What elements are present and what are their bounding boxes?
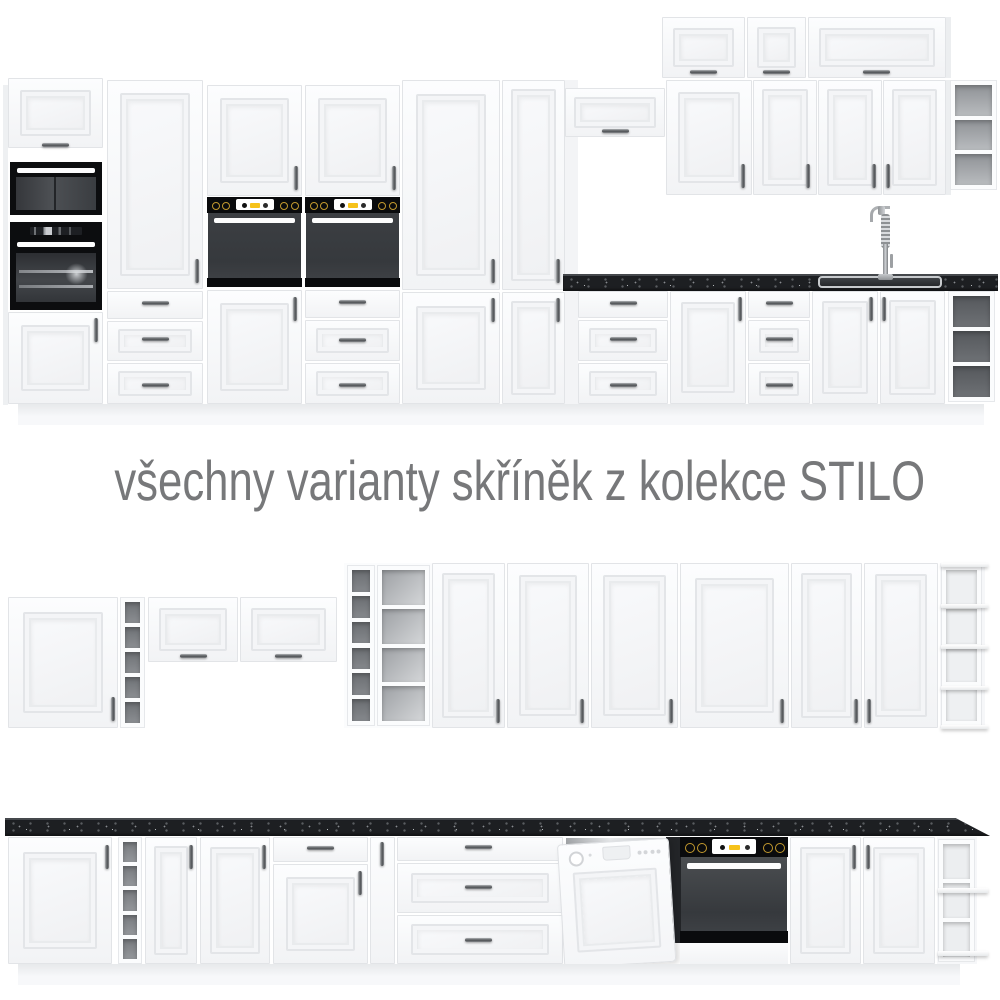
shelf-cell [946,570,977,605]
open-shelf-column [120,597,145,728]
display-dot [263,203,268,208]
door-panel [29,333,82,383]
handle [738,297,742,321]
shelf-cell [953,331,990,362]
door-panel [519,97,548,273]
handle [741,164,745,188]
handle [886,164,890,188]
door-panel [809,581,844,710]
door-panel [28,98,83,128]
door-panel [31,860,89,941]
tall-cabinet-door [502,80,565,290]
tall-cabinet-top-door [8,78,103,148]
tall-cabinet-door [864,563,938,728]
display-dot [242,203,247,208]
shelf-cell [382,648,425,683]
oven-door-handle [312,218,394,223]
countertop [5,818,990,836]
wall-flip-door [662,17,745,78]
base-cabinet-door [8,837,112,964]
oven-display [334,199,372,210]
faucet [866,206,902,280]
handle [465,938,492,942]
handle [766,383,793,387]
oven-window [16,253,95,302]
oven-knob [378,202,386,210]
door-panel [326,106,379,175]
handle [189,845,193,869]
handle [105,845,109,869]
handle [763,70,790,74]
cabinet-door [207,290,302,404]
display-dot [720,845,725,850]
handle [866,845,870,869]
door-panel [703,586,766,705]
handle [491,259,495,283]
handle [307,846,334,850]
shelf-board [941,645,988,649]
oven-housing-top-door [207,85,302,196]
oven-knob [685,843,695,853]
base-cabinet-door [200,837,270,964]
base-cabinet-door [670,291,746,404]
shelf-cell [382,686,425,721]
handle [180,654,207,658]
microwave-handle [17,168,94,173]
cabinet-door [402,292,500,404]
handle [496,699,500,723]
oven-display [236,199,274,210]
handle [465,885,492,889]
oven-door-handle [687,863,780,869]
door-panel [581,876,653,944]
handle [491,298,495,322]
faucet-base [878,274,893,280]
door-panel [218,855,252,946]
oven-bottom-trim [680,931,788,943]
oven-door [306,213,399,278]
open-base-shelf [948,291,995,402]
door-panel [835,97,865,178]
door-panel [611,583,658,708]
dishwasher-button [650,850,654,854]
oven-knob [389,202,397,210]
door-panel [228,311,281,383]
dishwasher-button [644,850,648,854]
handle [882,297,886,321]
handle [872,164,876,188]
door-panel [527,583,569,708]
handle [358,871,362,895]
oven-bottom-trim [305,278,400,287]
dishwasher-dial [568,851,584,867]
oven-door [681,857,787,931]
door-panel [827,36,927,59]
door-panel [900,97,929,178]
display-bar [348,203,358,208]
plinth [18,404,984,425]
handle [556,298,560,322]
built-in-oven [680,837,788,943]
base-cabinet-door [273,864,368,964]
oven-knob [222,202,230,210]
shelf-board [941,563,988,567]
microwave-window [16,177,95,210]
door-panel [519,309,548,387]
handle [42,143,69,147]
shelf-cell [352,596,370,618]
display-dot [340,203,345,208]
shelf-cell [955,154,992,185]
faucet-lever [890,254,893,268]
door-panel [228,106,281,175]
shelf-cell [352,699,370,721]
handle [556,259,560,283]
plinth [18,964,960,985]
oven-door [208,213,301,278]
oven-display [30,227,82,235]
door-panel [808,855,843,946]
door-panel [686,100,732,175]
door-panel [689,310,727,385]
oven-display [712,839,755,854]
shelf-cell [125,627,140,648]
tall-cabinet-door [107,80,203,289]
wall-side-panel [946,17,951,78]
shelf-board [941,686,988,690]
oven-door-handle [214,218,296,223]
shelf-cell [352,570,370,592]
door-panel [167,616,219,643]
tall-cabinet-door [791,563,862,728]
tall-cabinet-door [402,80,500,290]
handle [380,842,384,866]
door-panel [681,36,726,59]
shelf-board [938,888,988,893]
drawer [107,321,203,361]
oven-handle [17,242,94,247]
built-in-oven [305,197,400,287]
handle [610,383,637,387]
dishwasher-button [657,849,661,853]
door-panel [881,855,917,946]
door-panel [128,101,182,268]
product-image-kitchen-collage: všechny varianty skříněk z kolekce STILO [0,0,1000,1000]
faucet-spring [881,214,890,248]
handle [867,699,871,723]
wall-flip-door [148,597,238,662]
wall-cabinet-door [666,80,752,195]
shelf-cell [953,366,990,397]
shelf-cell [125,602,140,623]
door-panel [162,854,180,947]
shelf-cells [938,839,975,962]
shelf-cell [123,939,137,959]
handle [863,70,890,74]
oven-housing-top-door [305,85,400,196]
shelf-cell [943,844,970,879]
shelf-cell [955,120,992,151]
handle [610,337,637,341]
handle [465,845,492,849]
shelf-cell [946,648,977,683]
shelf-cell [382,570,425,605]
shelf-cell [946,686,977,721]
oven-bottom-trim [207,278,302,287]
base-cabinet-door [790,837,861,964]
oven-control-panel [207,197,302,213]
dishwasher-handle-recess [602,845,631,861]
tall-cabinet-door [591,563,678,728]
handle [142,383,169,387]
handle [766,337,793,341]
caption: všechny varianty skříněk z kolekce STILO [0,446,1000,516]
door-panel [582,105,648,120]
caption-text: všechny varianty skříněk z kolekce STILO [114,446,925,516]
shelf-cell [955,85,992,116]
handle [339,338,366,342]
door-panel [294,885,347,943]
oven-knob [291,202,299,210]
dishwasher [557,838,676,969]
wall-flip-door [747,17,806,78]
oven-knob [280,202,288,210]
handle [610,301,637,305]
door-panel [830,309,860,386]
faucet-body [883,244,888,274]
drawer [397,837,563,861]
door-panel [450,581,487,710]
handle [339,383,366,387]
handle [275,654,302,658]
oven-knob [320,202,328,210]
shelf-cell [953,296,990,327]
oven-knob [775,843,785,853]
wall-cabinet-door [8,597,118,728]
door-panel [765,35,788,60]
handle [262,845,266,869]
handle [195,259,199,283]
handle [806,164,810,188]
tall-cabinet-door [507,563,589,728]
open-wall-shelf [950,80,997,190]
door-panel [259,616,318,643]
oven-control-panel [305,197,400,213]
shelf-cell [123,866,137,886]
shelf-cells [377,565,430,726]
handle [852,845,856,869]
display-bar [729,845,740,850]
handle [669,699,673,723]
handle [339,300,366,304]
shelf-cell [382,609,425,644]
sink-cabinet-door [880,291,945,404]
handle [780,699,784,723]
handle [142,337,169,341]
shelf-cell [123,890,137,910]
display-dot [745,845,750,850]
door-panel [770,97,800,178]
door-panel [883,582,919,709]
dishwasher-button [637,851,641,855]
door-panel [424,314,478,382]
shelf-cell [125,652,140,673]
handle [294,166,298,190]
built-in-oven [10,222,102,310]
shelf-cell [123,842,137,862]
display-dot [361,203,366,208]
handle [94,318,98,342]
oven-knob [212,202,220,210]
door-panel [31,620,95,705]
shelf-cell [125,677,140,698]
built-in-oven [207,197,302,287]
display-bar [250,203,260,208]
oven-knob [310,202,318,210]
dishwasher-button [588,854,591,857]
handle [854,699,858,723]
microwave [10,162,102,215]
shelf-board [938,951,988,956]
shelf-cells [347,565,375,726]
handle [142,301,169,305]
handle [602,129,629,133]
base-cabinet-door [863,837,935,964]
handle [392,166,396,190]
door-panel [424,102,478,268]
shelf-board [941,604,988,608]
handle [690,70,717,74]
drawer [107,291,203,319]
handle [869,297,873,321]
handle [766,301,793,305]
tall-cabinet-door [680,563,789,728]
handle [580,699,584,723]
oven-control-panel [680,837,788,857]
tall-cabinet-door [432,563,505,728]
shelf-cell [125,702,140,723]
oven-under-panel [680,943,788,964]
handle [111,697,115,721]
wall-flip-door [808,17,946,78]
oven-knob [763,843,773,853]
wall-flip-door [240,597,337,662]
shelf-cell [946,609,977,644]
handle [293,297,297,321]
cabinet-door [8,312,103,404]
drawer [305,290,400,318]
shelf-cell [352,673,370,695]
shelf-cell [123,915,137,935]
door-panel [897,308,928,387]
shelf-cell [352,622,370,644]
shelf-board [941,725,988,729]
wall-cabinet-door [883,80,946,195]
window-divider [54,177,56,210]
shelf-cell [352,648,370,670]
open-shelf-column [118,837,142,964]
oven-knob [697,843,707,853]
